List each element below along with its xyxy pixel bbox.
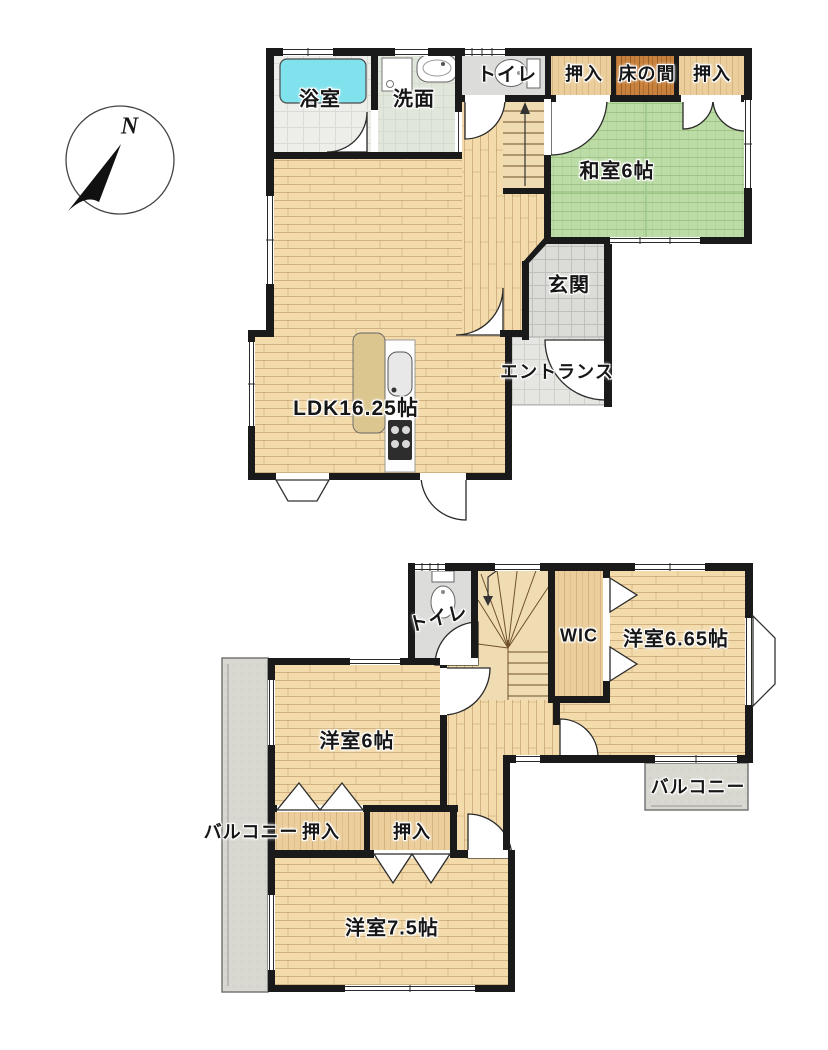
room-label-western-6-2f: 洋室6帖 — [319, 725, 394, 754]
room-label-closet-b-1f: 押入 — [693, 60, 731, 86]
room-label-balcony-left-2f: バルコニー — [204, 818, 299, 844]
toilet-icon — [432, 571, 454, 582]
room-label-wic-2f: WIC — [560, 626, 598, 647]
room-label-ldk-1f: LDK16.25帖 — [293, 392, 419, 422]
room-label-entrance-1f: エントランス — [500, 358, 614, 384]
room-label-closet-a-2f: 押入 — [302, 818, 340, 844]
floor1-drawing — [248, 48, 752, 520]
stove-icon — [388, 420, 412, 460]
ldk-exterior-door-swing — [421, 477, 466, 520]
room-label-western-665-2f: 洋室6.65帖 — [623, 623, 729, 652]
room-label-genkan-1f: 玄関 — [548, 269, 590, 298]
stairs-1f-icon — [503, 100, 551, 194]
room-label-bathroom-1f: 浴室 — [299, 83, 341, 112]
room-label-closet-a-1f: 押入 — [565, 60, 603, 86]
room-label-japanese-room-1f: 和室6帖 — [579, 155, 654, 184]
room-label-western-75-2f: 洋室7.5帖 — [345, 912, 439, 941]
floor-plan-drawing — [0, 0, 828, 1050]
compass-north-label: N — [121, 114, 139, 141]
room-label-closet-b-2f: 押入 — [393, 818, 431, 844]
bay-window-1f — [276, 480, 329, 501]
room-label-toilet-1f: トイレ — [477, 60, 537, 87]
room-label-balcony-right-2f: バルコニー — [651, 773, 746, 799]
room-label-tokonoma-1f: 床の間 — [619, 60, 676, 86]
room-label-washroom-1f: 洗面 — [393, 83, 435, 112]
bay-window-2f — [753, 616, 775, 706]
floor-plan: N 浴室 洗面 トイレ 押入 床の間 押入 和室6帖 玄関 エントランス LDK… — [0, 0, 828, 1050]
